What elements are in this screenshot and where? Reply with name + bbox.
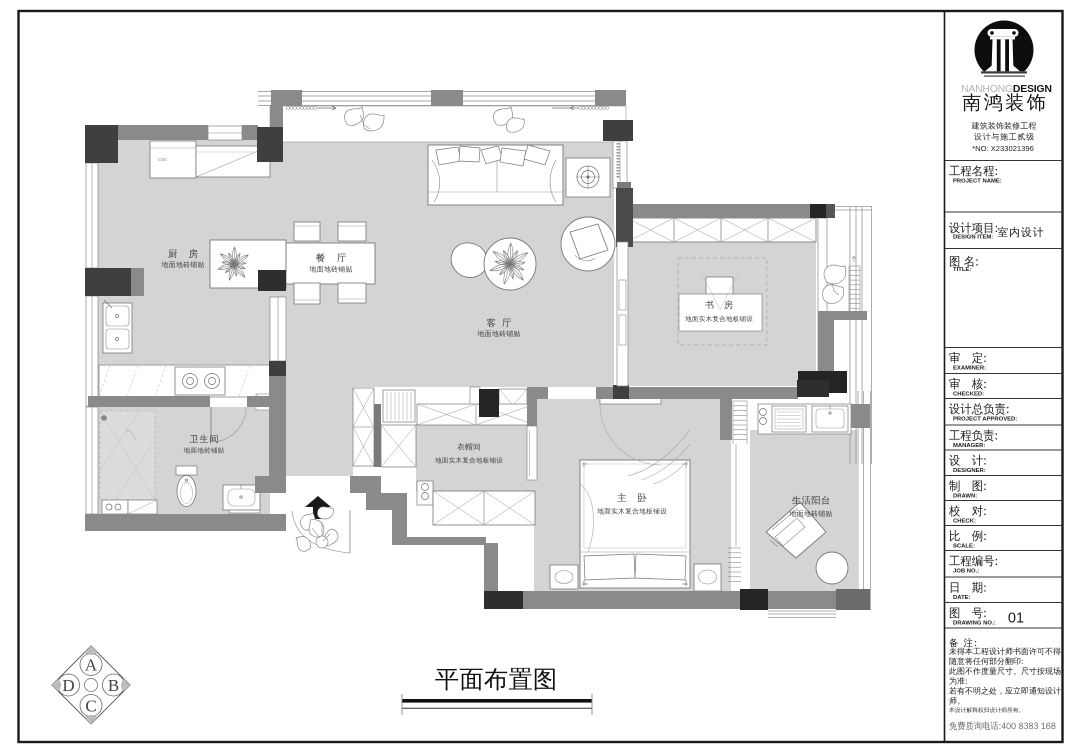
svg-text:PROJECT NAME:: PROJECT NAME: bbox=[953, 179, 1002, 185]
svg-text:EBE: EBE bbox=[158, 157, 167, 162]
svg-text:PROJECT APPROVED:: PROJECT APPROVED: bbox=[953, 417, 1017, 423]
svg-text:NANHONGDESIGN: NANHONGDESIGN bbox=[961, 83, 1052, 95]
svg-text:MANAGER:: MANAGER: bbox=[953, 443, 985, 449]
svg-text:C: C bbox=[85, 697, 96, 716]
svg-text:CHECK:: CHECK: bbox=[953, 519, 976, 525]
svg-text:DRAWN:: DRAWN: bbox=[953, 494, 977, 500]
svg-text:B: B bbox=[108, 676, 119, 695]
svg-text:DATE:: DATE: bbox=[953, 595, 971, 601]
svg-text:*NO: X233021396: *NO: X233021396 bbox=[972, 144, 1034, 153]
svg-text:TITLE:: TITLE: bbox=[953, 267, 971, 273]
svg-text:DESIGN ITEM:: DESIGN ITEM: bbox=[953, 235, 993, 241]
svg-text:EXAMINER:: EXAMINER: bbox=[953, 366, 986, 372]
svg-text:A: A bbox=[85, 656, 98, 675]
svg-text:DRAWING NO.:: DRAWING NO.: bbox=[953, 621, 996, 627]
svg-text:SCALE:: SCALE: bbox=[953, 544, 975, 550]
svg-text:D: D bbox=[62, 676, 74, 695]
svg-text:JOB NO.:: JOB NO.: bbox=[953, 569, 979, 575]
svg-text:DESIGNER:: DESIGNER: bbox=[953, 468, 986, 474]
svg-text:CHECKED:: CHECKED: bbox=[953, 392, 984, 398]
svg-text:01: 01 bbox=[1008, 611, 1024, 627]
